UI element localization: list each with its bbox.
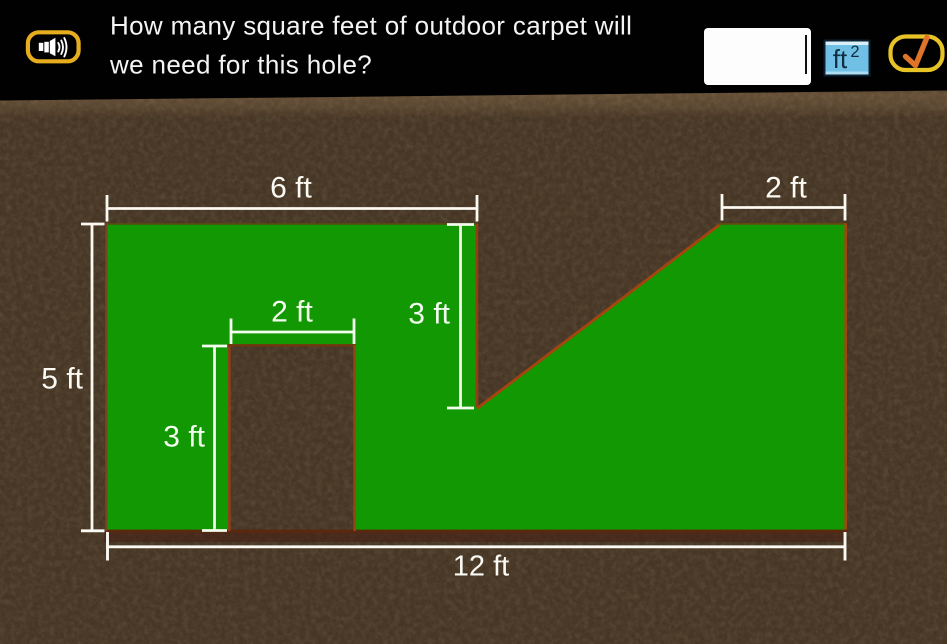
svg-text:12 ft: 12 ft (453, 551, 509, 583)
svg-text:2: 2 (850, 43, 859, 61)
svg-text:3 ft: 3 ft (408, 298, 450, 331)
svg-text:2 ft: 2 ft (271, 296, 313, 329)
svg-text:ft: ft (833, 44, 848, 74)
svg-text:2 ft: 2 ft (765, 172, 807, 205)
svg-text:6 ft: 6 ft (270, 172, 312, 205)
svg-text:we need for this hole?: we need for this hole? (109, 50, 372, 80)
svg-text:How many square feet of outdoo: How many square feet of outdoor carpet w… (110, 11, 632, 41)
svg-text:3 ft: 3 ft (163, 421, 205, 454)
svg-text:5 ft: 5 ft (41, 363, 83, 396)
